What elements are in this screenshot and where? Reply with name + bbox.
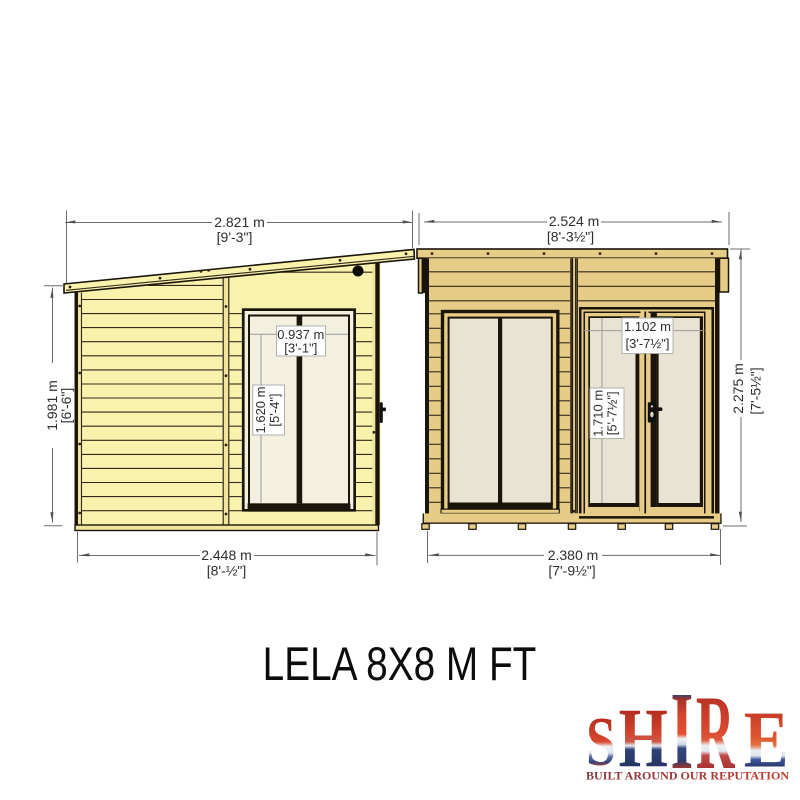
- svg-text:[3'-1"]: [3'-1"]: [284, 341, 317, 356]
- svg-text:[5'-7½"]: [5'-7½"]: [604, 391, 619, 435]
- svg-text:[3'-7½"]: [3'-7½"]: [626, 336, 670, 351]
- svg-text:2.821 m: 2.821 m: [214, 214, 265, 230]
- svg-text:BUILT AROUND OUR REPUTATION: BUILT AROUND OUR REPUTATION: [586, 769, 789, 783]
- svg-text:2.448 m: 2.448 m: [201, 547, 252, 563]
- svg-text:[9'-3"]: [9'-3"]: [217, 229, 253, 245]
- svg-text:2.275 m: 2.275 m: [730, 363, 746, 414]
- svg-text:[8'-3½"]: [8'-3½"]: [547, 229, 594, 245]
- svg-text:2.380 m: 2.380 m: [548, 547, 599, 563]
- svg-text:2.524 m: 2.524 m: [549, 213, 600, 229]
- svg-text:[5'-4"]: [5'-4"]: [267, 393, 282, 426]
- svg-text:0.937 m: 0.937 m: [277, 327, 324, 342]
- svg-text:[6'-6"]: [6'-6"]: [58, 388, 74, 424]
- svg-text:LELA 8X8 M FT: LELA 8X8 M FT: [263, 639, 537, 691]
- svg-text:[7'-9½"]: [7'-9½"]: [548, 562, 595, 578]
- svg-text:1.620 m: 1.620 m: [253, 387, 268, 434]
- svg-text:1.102 m: 1.102 m: [624, 319, 671, 334]
- svg-text:1.710 m: 1.710 m: [591, 390, 606, 437]
- svg-text:[8'-½"]: [8'-½"]: [207, 562, 247, 578]
- svg-text:[7'-5½"]: [7'-5½"]: [747, 367, 763, 414]
